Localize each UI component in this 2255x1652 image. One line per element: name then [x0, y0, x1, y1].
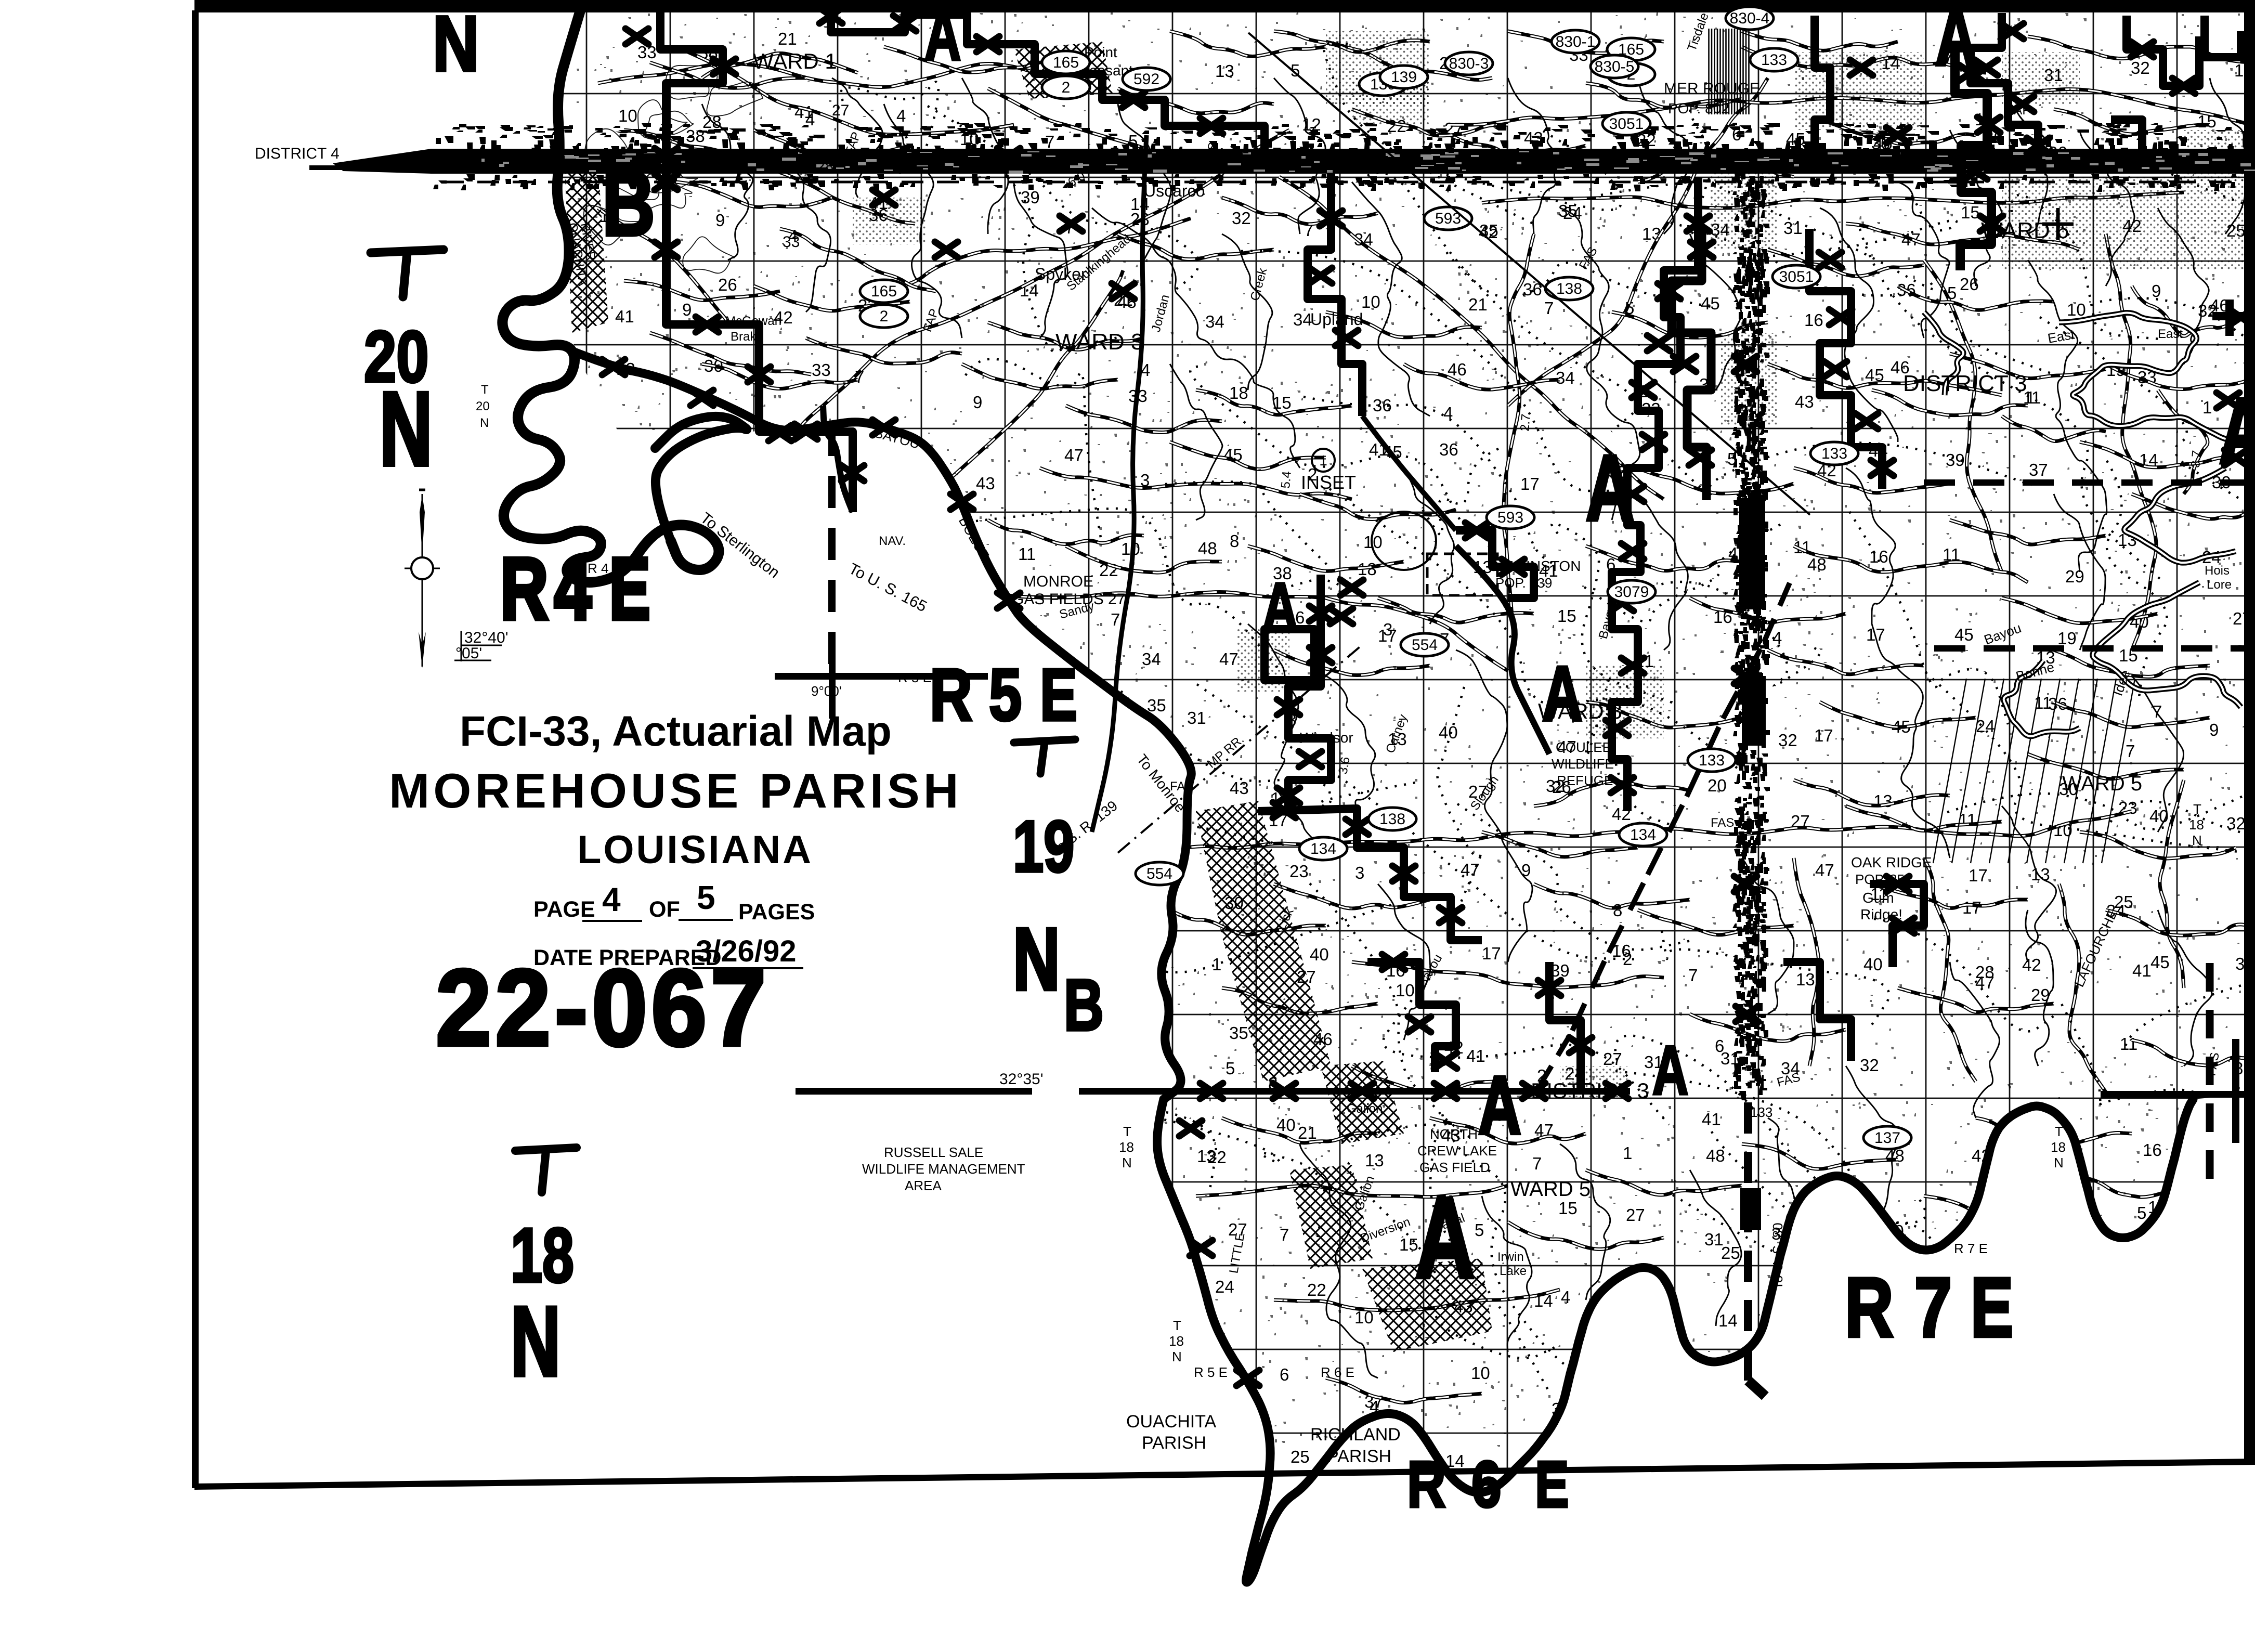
svg-text:NAV.: NAV.: [879, 534, 906, 548]
svg-text:To U. S. 80: To U. S. 80: [1770, 1222, 1785, 1290]
svg-text:PARISH: PARISH: [1142, 1433, 1206, 1453]
svg-text:137: 137: [1874, 1129, 1900, 1147]
svg-text:554: 554: [1412, 636, 1438, 654]
svg-text:N: N: [1172, 1349, 1182, 1364]
svg-text:5.4: 5.4: [1279, 471, 1294, 489]
svg-text:592: 592: [1133, 71, 1159, 88]
svg-text:WARD 1: WARD 1: [753, 49, 837, 73]
svg-text:6: 6: [1715, 1036, 1724, 1056]
svg-text:830-3: 830-3: [1449, 55, 1489, 72]
svg-text:WARD 3: WARD 3: [1055, 329, 1144, 355]
svg-text:2: 2: [880, 308, 889, 325]
svg-text:R: R: [930, 654, 972, 736]
svg-text:3.7: 3.7: [2188, 450, 2204, 469]
svg-text:Hois: Hois: [2205, 564, 2230, 578]
svg-text:5: 5: [697, 879, 715, 916]
svg-text:CREW LAKE: CREW LAKE: [1417, 1143, 1497, 1159]
svg-text:T: T: [481, 383, 489, 397]
svg-text:10: 10: [1471, 1363, 1490, 1383]
svg-text:139: 139: [1391, 69, 1417, 86]
svg-text:WILDLIFE MANAGEMENT: WILDLIFE MANAGEMENT: [862, 1161, 1025, 1177]
svg-text:9: 9: [715, 211, 725, 230]
svg-text:N: N: [2054, 1155, 2064, 1170]
svg-text:OUACHITA: OUACHITA: [1126, 1412, 1216, 1432]
svg-text:R: R: [500, 540, 548, 638]
svg-text:Windsor: Windsor: [1300, 730, 1353, 746]
svg-text:17: 17: [1814, 726, 1833, 745]
svg-text:830-4: 830-4: [1730, 10, 1770, 27]
svg-text:34: 34: [1142, 649, 1161, 669]
svg-text:COLLINSTON: COLLINSTON: [1488, 558, 1581, 574]
svg-text:5: 5: [2137, 1203, 2146, 1222]
svg-text:21: 21: [1298, 1123, 1317, 1142]
svg-text:33: 33: [812, 360, 831, 380]
svg-text:A: A: [1262, 569, 1298, 645]
svg-text:16: 16: [2143, 1140, 2162, 1160]
svg-text:18: 18: [511, 1212, 574, 1298]
svg-text:41: 41: [615, 307, 634, 326]
svg-text:554: 554: [1146, 865, 1172, 882]
svg-text:24: 24: [1976, 717, 1995, 736]
svg-text:24: 24: [1215, 1277, 1234, 1296]
svg-text:20: 20: [476, 399, 490, 413]
svg-text:27: 27: [832, 102, 849, 119]
svg-text:MOREHOUSE PARISH: MOREHOUSE PARISH: [389, 763, 962, 818]
svg-text:T: T: [2055, 1124, 2063, 1139]
svg-text:7: 7: [1914, 1260, 1952, 1355]
svg-text:GAS FIELD: GAS FIELD: [1419, 1160, 1490, 1175]
svg-text:2.7: 2.7: [1518, 413, 1533, 432]
svg-text:Galion: Galion: [1347, 1102, 1383, 1116]
svg-text:7: 7: [1111, 610, 1120, 629]
svg-text:31: 31: [1187, 708, 1206, 727]
svg-text:40: 40: [1276, 1115, 1296, 1135]
svg-text:593: 593: [1497, 509, 1523, 526]
svg-text:4: 4: [554, 540, 591, 638]
svg-text:133: 133: [1750, 1104, 1772, 1120]
svg-text:1: 1: [1623, 1143, 1632, 1163]
svg-text:31: 31: [1783, 218, 1803, 238]
svg-text:2: 2: [1062, 79, 1071, 96]
svg-text:138: 138: [1379, 811, 1405, 828]
svg-text:15: 15: [1558, 1199, 1578, 1218]
svg-text:PAGE: PAGE: [533, 897, 595, 922]
svg-text:R 7 E: R 7 E: [1954, 1241, 1988, 1256]
svg-text:East: East: [2158, 327, 2183, 341]
svg-text:45: 45: [2150, 953, 2170, 972]
svg-text:18: 18: [2051, 1139, 2066, 1155]
svg-text:R 5 E: R 5 E: [1194, 1364, 1228, 1380]
svg-text:Lore: Lore: [2207, 578, 2232, 592]
svg-text:134: 134: [1310, 840, 1336, 857]
svg-text:Upland: Upland: [1310, 310, 1363, 329]
svg-text:Uscarco: Uscarco: [1144, 181, 1205, 200]
svg-text:DISTRICT 4: DISTRICT 4: [255, 145, 340, 162]
svg-text:10: 10: [2067, 300, 2086, 319]
svg-text:16: 16: [1804, 310, 1823, 330]
svg-text:32: 32: [1232, 209, 1251, 228]
svg-text:WARD 5: WARD 5: [2062, 772, 2142, 795]
svg-text:E: E: [609, 540, 650, 638]
svg-text:34: 34: [1293, 310, 1312, 329]
svg-text:A: A: [1542, 650, 1582, 737]
svg-text:33: 33: [783, 233, 800, 251]
svg-text:17: 17: [1520, 474, 1540, 493]
svg-text:A: A: [1415, 1175, 1475, 1302]
svg-text:4: 4: [896, 106, 906, 125]
svg-text:9: 9: [2209, 720, 2219, 739]
svg-text:11: 11: [1018, 544, 1036, 564]
svg-text:Irwin: Irwin: [1497, 1250, 1524, 1264]
svg-text:B: B: [1064, 965, 1104, 1046]
svg-text:37: 37: [2029, 460, 2048, 479]
svg-text:15: 15: [1961, 203, 1980, 222]
svg-text:9°00': 9°00': [811, 683, 842, 699]
svg-text:WARD 5: WARD 5: [1510, 1178, 1591, 1201]
svg-text:133: 133: [1821, 445, 1847, 462]
svg-text:43: 43: [1230, 778, 1249, 798]
svg-text:FAS: FAS: [1711, 816, 1734, 830]
svg-text:NORTH: NORTH: [1430, 1126, 1478, 1142]
svg-text:R 6 E: R 6 E: [1321, 1364, 1354, 1380]
svg-text:WARD 6: WARD 6: [1981, 218, 2069, 243]
svg-text:E: E: [1040, 654, 1077, 736]
svg-text:Gum: Gum: [1862, 890, 1894, 906]
svg-text:Ridge!: Ridge!: [1860, 906, 1902, 922]
svg-text:Lake: Lake: [1500, 1264, 1527, 1278]
svg-text:7: 7: [1688, 966, 1698, 985]
svg-text:41: 41: [2132, 961, 2152, 980]
svg-text:5: 5: [989, 654, 1022, 736]
svg-text:28: 28: [816, 158, 833, 175]
svg-text:°05': °05': [455, 645, 482, 662]
svg-text:E: E: [1535, 1448, 1569, 1521]
svg-text:16: 16: [1869, 547, 1888, 566]
svg-text:134: 134: [1630, 826, 1656, 843]
svg-text:A: A: [1586, 436, 1634, 540]
svg-text:LOUISIANA: LOUISIANA: [577, 828, 813, 872]
svg-text:T: T: [1173, 1318, 1181, 1333]
svg-text:19: 19: [2057, 629, 2077, 648]
svg-text:39: 39: [1021, 188, 1040, 207]
svg-text:R 5 E: R 5 E: [898, 670, 932, 685]
svg-text:40: 40: [1863, 955, 1883, 974]
svg-text:43: 43: [1795, 392, 1814, 411]
svg-text:18: 18: [1169, 1333, 1184, 1349]
svg-text:46: 46: [1448, 360, 1467, 379]
svg-text:N: N: [2192, 832, 2202, 848]
svg-text:18: 18: [1119, 1139, 1134, 1155]
svg-text:11: 11: [2120, 1034, 2137, 1053]
svg-text:WARD 8: WARD 8: [1538, 699, 1622, 723]
svg-text:29: 29: [2065, 567, 2084, 586]
svg-text:10: 10: [1396, 981, 1415, 1000]
svg-text:A: A: [1935, 0, 1977, 82]
svg-text:N: N: [511, 1286, 561, 1397]
svg-text:A: A: [1652, 1031, 1688, 1109]
svg-text:N: N: [433, 0, 479, 87]
svg-text:3051: 3051: [1779, 268, 1814, 285]
svg-text:T: T: [2193, 801, 2201, 817]
svg-text:REFUGE: REFUGE: [1557, 773, 1613, 788]
svg-text:830-1: 830-1: [1556, 33, 1596, 50]
svg-text:9: 9: [2152, 281, 2161, 301]
svg-text:23: 23: [1289, 862, 1309, 881]
svg-text:40: 40: [1310, 945, 1329, 964]
svg-text:T: T: [1123, 1124, 1131, 1139]
svg-text:MONROE: MONROE: [1023, 573, 1093, 590]
svg-text:INSET: INSET: [1301, 472, 1356, 493]
svg-text:RICHLAND: RICHLAND: [1310, 1425, 1401, 1445]
svg-text:15: 15: [1272, 393, 1292, 412]
svg-text:4: 4: [602, 881, 621, 918]
svg-text:17: 17: [1969, 866, 1988, 885]
svg-text:41: 41: [1702, 1110, 1721, 1129]
svg-text:17: 17: [1482, 944, 1501, 963]
svg-text:13: 13: [1365, 1151, 1384, 1170]
svg-text:17: 17: [1962, 898, 1982, 917]
svg-text:34: 34: [1556, 368, 1575, 387]
svg-text:20: 20: [1707, 776, 1727, 795]
svg-text:15: 15: [1557, 606, 1576, 626]
svg-text:POP. 802: POP. 802: [1668, 100, 1729, 116]
svg-text:7: 7: [1544, 298, 1554, 318]
svg-text:45: 45: [1954, 625, 1974, 644]
svg-text:PARISH: PARISH: [1327, 1447, 1391, 1466]
svg-text:9: 9: [682, 300, 692, 319]
svg-text:COULEE: COULEE: [1556, 739, 1611, 755]
svg-text:N: N: [380, 370, 433, 487]
svg-text:40: 40: [1439, 723, 1458, 742]
svg-text:7: 7: [2126, 742, 2135, 761]
svg-text:43: 43: [976, 474, 995, 493]
svg-text:47: 47: [1219, 649, 1239, 669]
svg-text:POP. 439: POP. 439: [1495, 575, 1552, 591]
svg-text:7: 7: [1532, 1154, 1542, 1173]
svg-text:13: 13: [1197, 1147, 1216, 1166]
svg-text:27: 27: [1626, 1205, 1645, 1225]
svg-text:133: 133: [1761, 51, 1787, 69]
svg-text:138: 138: [1556, 280, 1582, 297]
svg-text:32°35': 32°35': [999, 1071, 1043, 1088]
svg-text:5: 5: [1226, 1059, 1235, 1078]
svg-text:N: N: [1122, 1155, 1132, 1170]
svg-text:13: 13: [1796, 970, 1815, 989]
svg-text:42: 42: [2022, 955, 2041, 974]
svg-text:DISTRICT 3: DISTRICT 3: [1531, 1078, 1649, 1103]
svg-text:14: 14: [1718, 1311, 1738, 1330]
svg-text:133: 133: [1699, 752, 1725, 769]
svg-text:32°40': 32°40': [464, 629, 508, 646]
svg-text:N: N: [480, 416, 489, 430]
svg-text:FAP: FAP: [2007, 103, 2030, 118]
svg-text:3051: 3051: [1609, 115, 1644, 133]
svg-text:MER ROUGE: MER ROUGE: [1664, 80, 1760, 97]
svg-text:POP. 257: POP. 257: [1855, 871, 1912, 887]
svg-text:PAGES: PAGES: [738, 900, 815, 925]
svg-text:1: 1: [2234, 61, 2244, 80]
svg-text:Brake: Brake: [731, 330, 763, 344]
svg-text:32: 32: [2131, 58, 2150, 77]
svg-text:28: 28: [1975, 962, 1995, 982]
svg-text:34: 34: [1205, 312, 1224, 331]
svg-text:35: 35: [1229, 1023, 1248, 1043]
svg-text:3.6: 3.6: [1336, 756, 1352, 775]
svg-text:48: 48: [1198, 539, 1217, 558]
svg-text:18: 18: [1229, 383, 1248, 402]
svg-text:13: 13: [1873, 791, 1893, 811]
svg-text:25: 25: [1291, 1447, 1310, 1466]
svg-text:165: 165: [871, 283, 897, 300]
svg-text:OAK RIDGE: OAK RIDGE: [1851, 854, 1932, 870]
svg-text:R: R: [1407, 1448, 1446, 1521]
svg-text:10: 10: [618, 106, 637, 125]
svg-text:32: 32: [1860, 1056, 1879, 1075]
svg-text:A: A: [2219, 379, 2255, 483]
svg-text:26: 26: [718, 275, 737, 294]
svg-text:32: 32: [1778, 731, 1797, 750]
svg-text:RUSSELL SALE: RUSSELL SALE: [884, 1144, 983, 1160]
svg-text:22: 22: [1307, 1280, 1326, 1299]
svg-text:6: 6: [1280, 1365, 1289, 1384]
svg-text:47: 47: [1064, 446, 1084, 465]
svg-text:R: R: [1845, 1260, 1894, 1355]
svg-text:DISTRICT 3: DISTRICT 3: [1903, 371, 2027, 396]
svg-text:B: B: [602, 152, 655, 255]
svg-text:165: 165: [1053, 54, 1079, 71]
svg-text:25: 25: [1721, 1243, 1740, 1263]
svg-text:1: 1: [1319, 452, 1327, 469]
svg-text:27: 27: [1603, 1049, 1622, 1069]
svg-text:47: 47: [1815, 861, 1834, 880]
svg-text:48: 48: [1706, 1146, 1725, 1165]
svg-text:45: 45: [1701, 294, 1720, 313]
svg-text:OF: OF: [649, 897, 680, 922]
svg-text:6: 6: [1471, 1448, 1501, 1521]
svg-text:9: 9: [973, 393, 982, 412]
svg-text:McGowan: McGowan: [725, 314, 781, 328]
svg-text:FCI-33, Actuarial Map: FCI-33, Actuarial Map: [460, 708, 892, 755]
svg-text:18: 18: [2189, 817, 2204, 832]
svg-text:9: 9: [1521, 861, 1531, 880]
svg-text:E: E: [1971, 1261, 2013, 1355]
svg-text:21: 21: [778, 29, 797, 48]
svg-text:3: 3: [1355, 863, 1364, 882]
svg-text:5: 5: [1475, 1220, 1484, 1240]
svg-text:1: 1: [2202, 398, 2212, 417]
svg-text:3079: 3079: [1614, 583, 1649, 601]
svg-text:8: 8: [1613, 901, 1622, 920]
svg-text:R 4: R 4: [588, 561, 608, 576]
svg-text:21: 21: [1468, 295, 1488, 314]
svg-text:22-067: 22-067: [436, 947, 770, 1069]
svg-text:A: A: [1478, 1060, 1521, 1152]
svg-text:AREA: AREA: [905, 1178, 942, 1193]
svg-text:830-5: 830-5: [1595, 58, 1635, 75]
svg-text:N: N: [1013, 910, 1060, 1009]
svg-text:WILDLIFE: WILDLIFE: [1552, 756, 1614, 772]
svg-text:A: A: [924, 0, 961, 75]
svg-text:10: 10: [1361, 292, 1380, 311]
